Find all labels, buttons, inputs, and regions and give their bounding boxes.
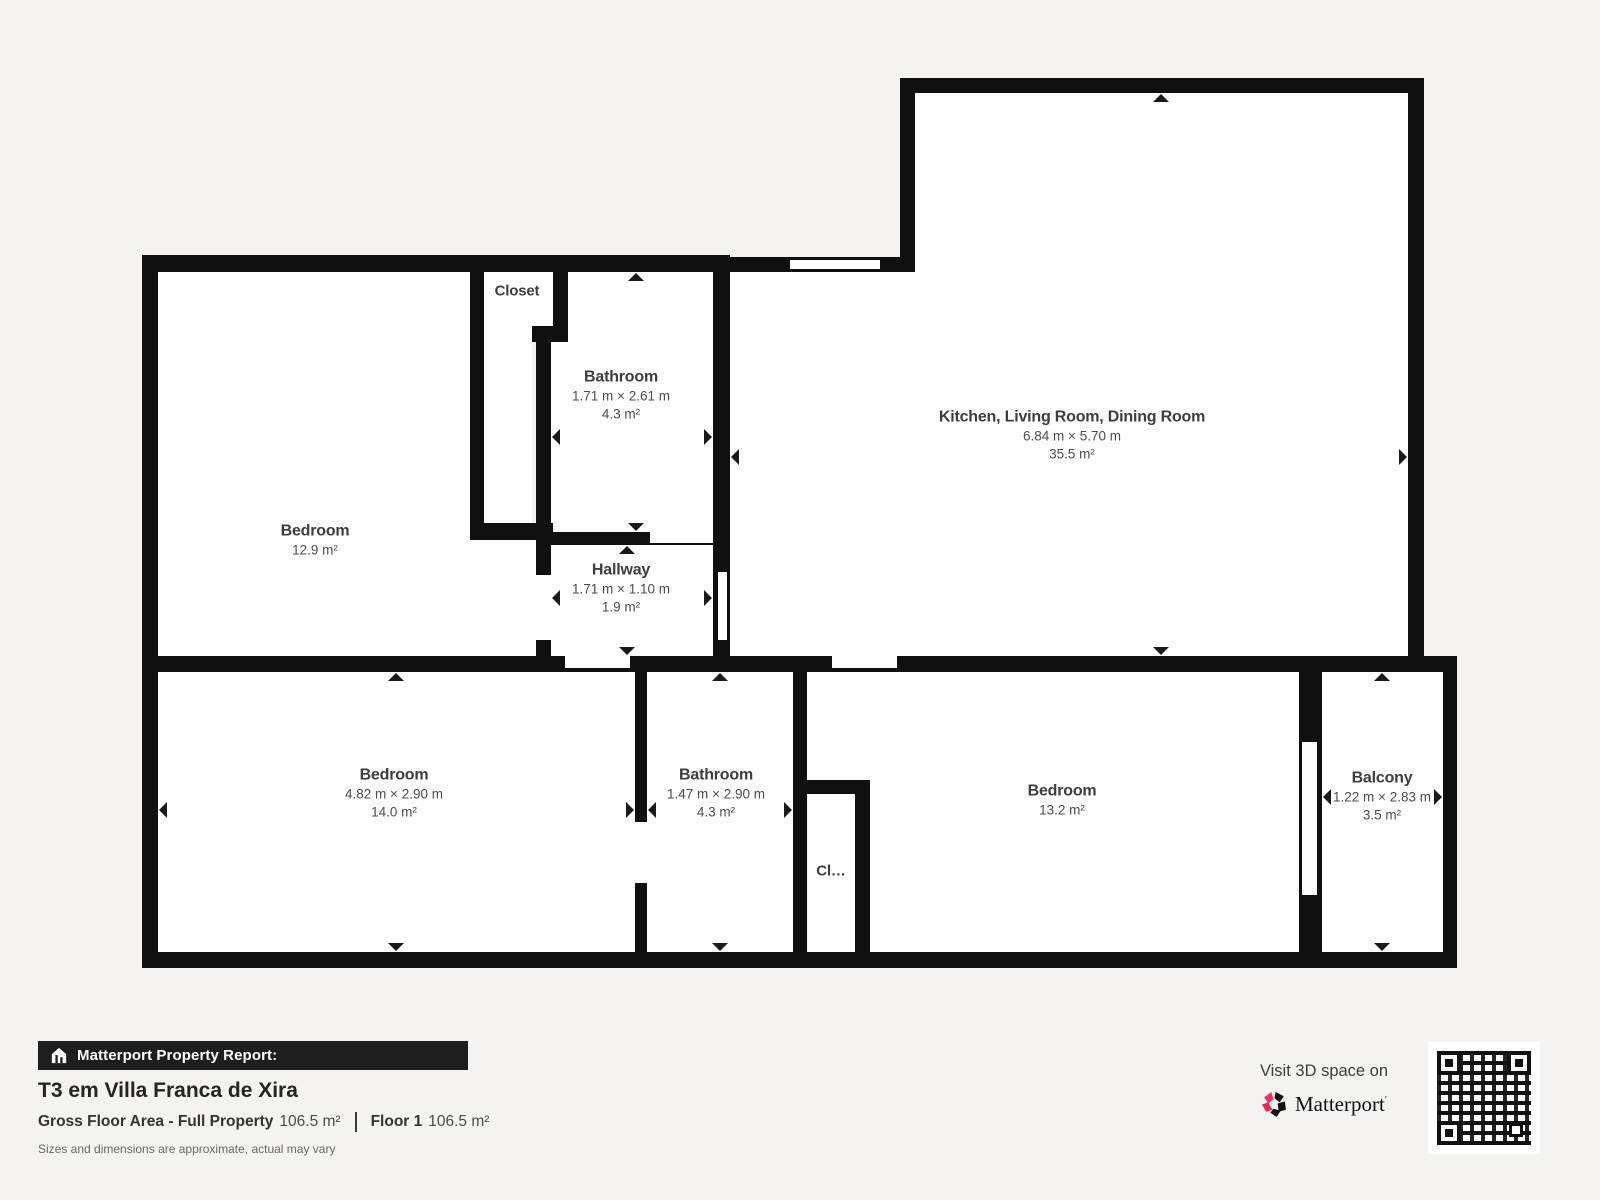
- visit-3d-label: Visit 3D space on: [1240, 1062, 1408, 1081]
- disclaimer-text: Sizes and dimensions are approximate, ac…: [38, 1142, 335, 1156]
- visit-3d-block: Visit 3D space on Matterport′: [1240, 1062, 1408, 1118]
- room-label-bathroom-bottom: Bathroom 1.47 m × 2.90 m 4.3 m²: [667, 765, 765, 822]
- qr-code: [1428, 1042, 1540, 1154]
- room-label-hallway: Hallway 1.71 m × 1.10 m 1.9 m²: [572, 560, 670, 617]
- room-label-bedroom-top-left: Bedroom 12.9 m²: [281, 521, 350, 560]
- floor-plan: [0, 0, 1600, 1200]
- qr-finder-icon: [1437, 1121, 1461, 1145]
- gross-area-label: Gross Floor Area - Full Property: [38, 1113, 273, 1131]
- room-label-bedroom-bottom-left: Bedroom 4.82 m × 2.90 m 14.0 m²: [345, 765, 443, 822]
- divider: [355, 1112, 357, 1132]
- report-header-bar: Matterport Property Report:: [38, 1041, 468, 1070]
- room-label-closet-bottom: Cl…: [816, 861, 845, 882]
- qr-finder-icon: [1437, 1051, 1461, 1075]
- report-bar-label: Matterport Property Report:: [77, 1047, 277, 1064]
- house-icon: [50, 1047, 68, 1064]
- matterport-wordmark: Matterport′: [1295, 1092, 1387, 1117]
- floor-value: 106.5 m²: [428, 1113, 489, 1131]
- gross-area-value: 106.5 m²: [279, 1113, 340, 1131]
- floor-area-row: Gross Floor Area - Full Property 106.5 m…: [38, 1112, 489, 1132]
- floor-label: Floor 1: [371, 1113, 423, 1131]
- property-title: T3 em Villa Franca de Xira: [38, 1079, 298, 1103]
- room-label-kitchen-living-dining: Kitchen, Living Room, Dining Room 6.84 m…: [939, 407, 1205, 464]
- qr-finder-icon: [1507, 1051, 1531, 1075]
- matterport-brand: Matterport′: [1240, 1091, 1408, 1118]
- matterport-pinwheel-icon: [1261, 1091, 1288, 1118]
- room-label-bedroom-bottom-right: Bedroom 13.2 m²: [1028, 781, 1097, 820]
- qr-finder-icon: [1509, 1123, 1523, 1137]
- room-label-closet-top: Closet: [495, 281, 540, 302]
- room-label-balcony: Balcony 1.22 m × 2.83 m 3.5 m²: [1333, 768, 1431, 825]
- room-label-bathroom-top: Bathroom 1.71 m × 2.61 m 4.3 m²: [572, 367, 670, 424]
